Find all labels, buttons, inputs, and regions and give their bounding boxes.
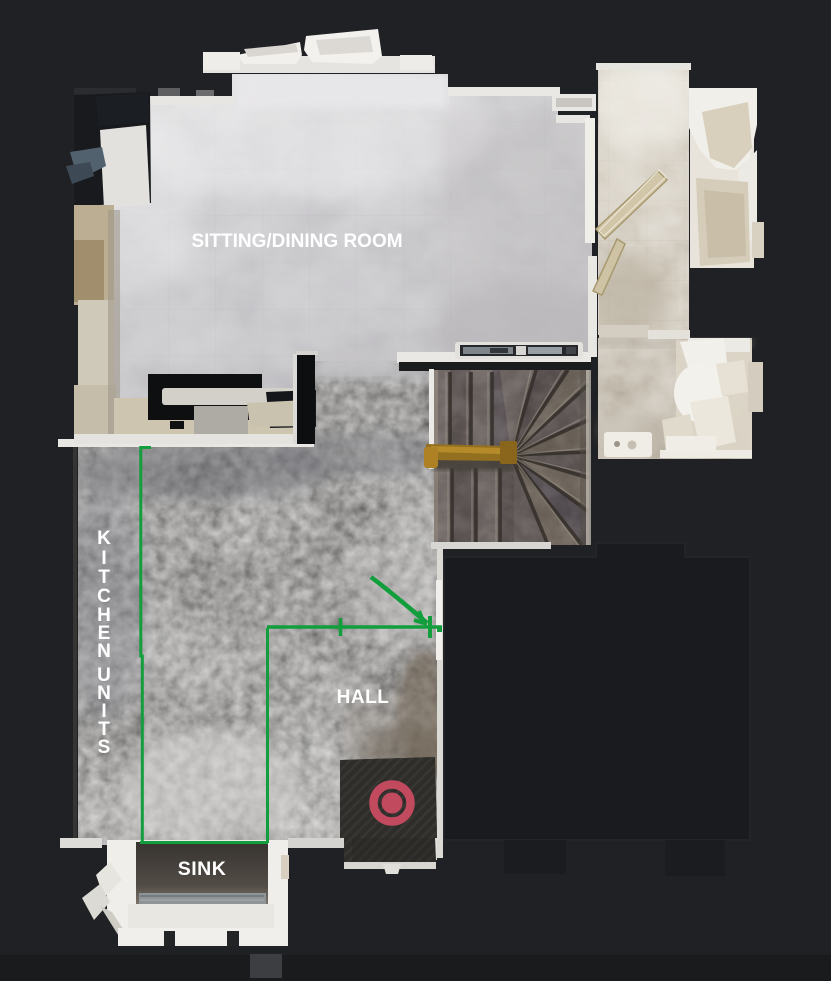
svg-text:S: S	[98, 737, 111, 758]
svg-text:T: T	[98, 567, 110, 588]
svg-text:SINK: SINK	[178, 858, 227, 880]
svg-text:HALL: HALL	[337, 687, 390, 708]
svg-text:N: N	[97, 641, 111, 662]
svg-text:C: C	[97, 586, 111, 607]
svg-text:SITTING/DINING ROOM: SITTING/DINING ROOM	[191, 231, 402, 252]
svg-text:K: K	[97, 528, 111, 549]
svg-text:I: I	[101, 548, 106, 569]
